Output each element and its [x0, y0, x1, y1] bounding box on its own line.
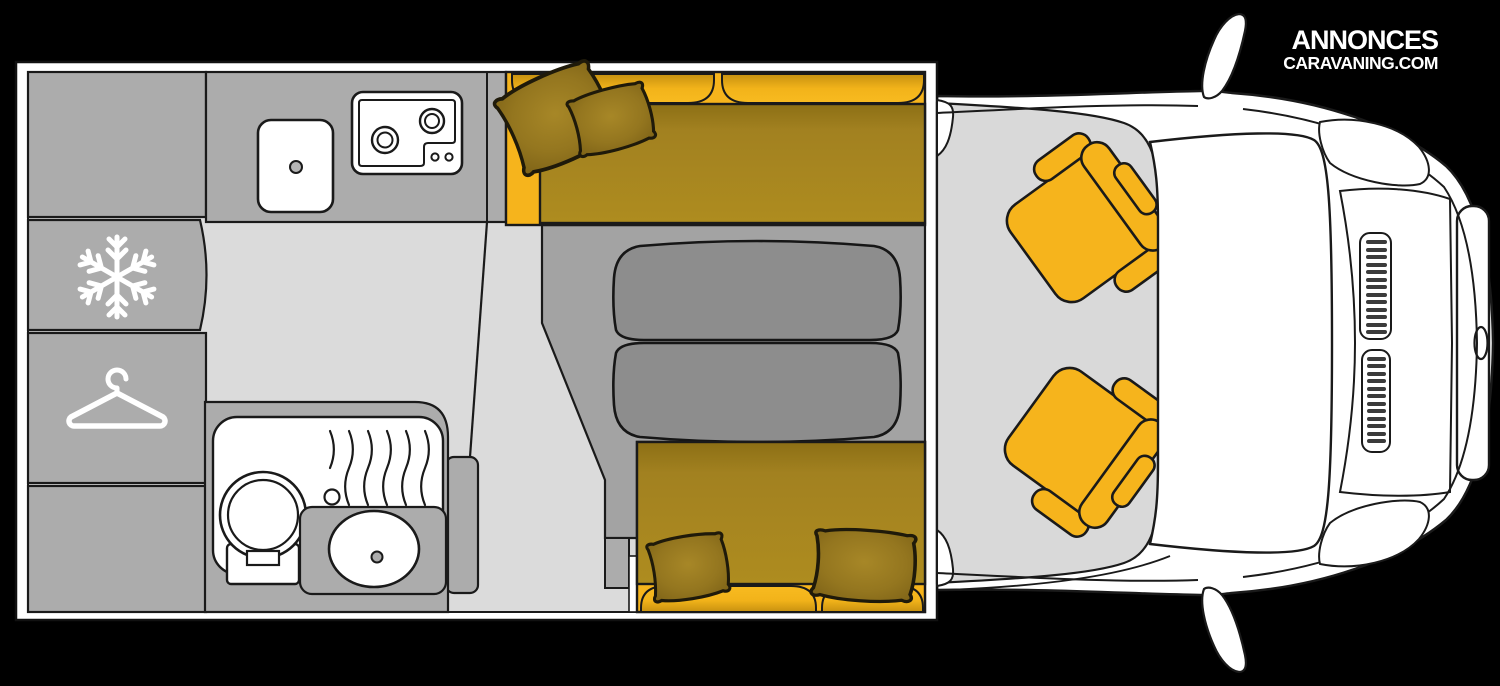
lower-cabinet	[28, 486, 206, 612]
vent-grille-2	[1362, 350, 1390, 452]
windshield	[1150, 133, 1332, 552]
floorplan-canvas: ANNONCES CARAVANING.COM	[0, 0, 1500, 686]
hood-panel	[1340, 189, 1452, 496]
kitchen-counter	[206, 72, 506, 222]
logo-line2: CARAVANING.COM	[1283, 55, 1438, 73]
logo-line1: ANNONCES	[1283, 27, 1438, 54]
shower-drain	[325, 490, 340, 505]
washbasin-cabinet-bump	[446, 457, 478, 593]
bench-side-panel	[605, 538, 629, 588]
washbasin	[300, 507, 446, 594]
site-logo: ANNONCES CARAVANING.COM	[1283, 27, 1438, 73]
backrest-cushion	[722, 74, 924, 103]
floorplan-drawing	[0, 0, 1500, 686]
toilet	[220, 472, 306, 584]
dinette-front-bench	[491, 57, 925, 225]
pillow-4	[811, 527, 918, 605]
hob	[352, 92, 462, 174]
side-mirror-icon	[1202, 14, 1246, 98]
wardrobe	[28, 333, 206, 483]
vent-grille-1	[1360, 233, 1391, 339]
bathroom	[205, 402, 478, 612]
overhead-cabinet	[28, 72, 206, 217]
pillow-3	[645, 530, 731, 604]
sink-drain	[290, 161, 302, 173]
dinette-rear-bench	[637, 442, 925, 612]
